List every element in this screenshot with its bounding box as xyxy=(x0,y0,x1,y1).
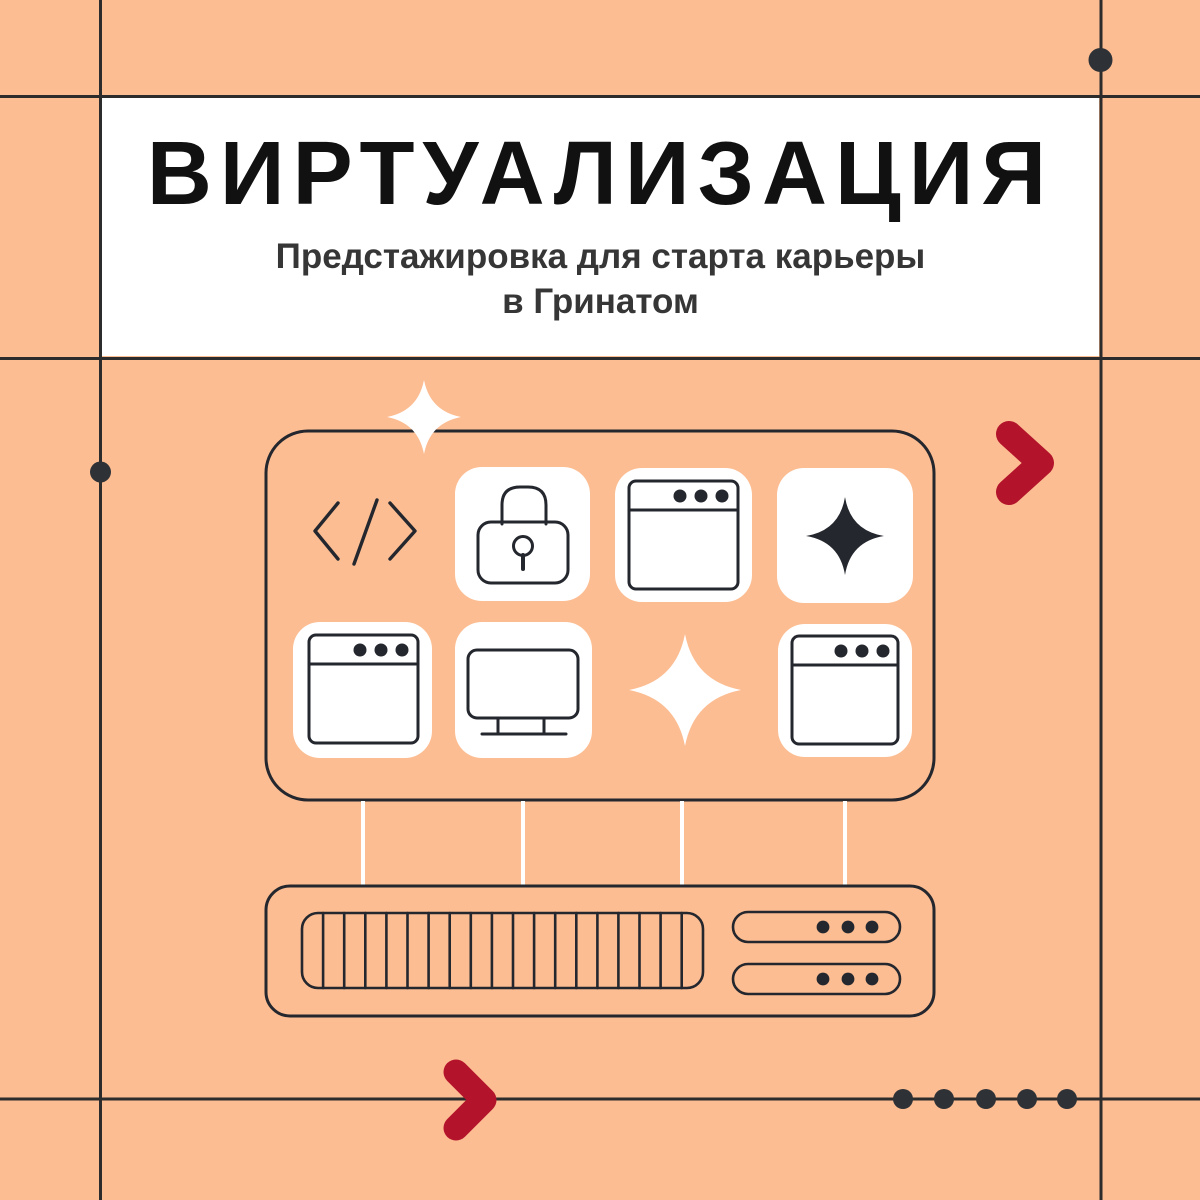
sparkle-icon xyxy=(387,380,461,454)
poster-subtitle-line1: Предстажировка для старта карьеры xyxy=(276,235,926,280)
rack-unit-1 xyxy=(733,912,900,942)
sparkle-icon xyxy=(629,634,741,746)
row-dot-icon xyxy=(1057,1089,1077,1109)
server-rack xyxy=(266,886,934,1016)
lock-tile xyxy=(455,467,590,601)
row-dot-icon xyxy=(1017,1089,1037,1109)
monitor-tile xyxy=(455,622,592,758)
icon-tile xyxy=(778,624,912,757)
icon-tile xyxy=(455,622,592,758)
grid-dot-top-right xyxy=(1089,48,1113,72)
grid-dot-left xyxy=(90,462,111,483)
title-banner: ВИРТУАЛИЗАЦИЯ Предстажировка для старта … xyxy=(102,98,1099,356)
row-dot-icon xyxy=(976,1089,996,1109)
icon-tile xyxy=(615,468,752,602)
code-icon xyxy=(315,500,415,564)
poster-subtitle-line2: в Гринатом xyxy=(276,280,926,325)
browser-tile-3 xyxy=(778,624,912,757)
poster-title: ВИРТУАЛИЗАЦИЯ xyxy=(147,129,1054,219)
sparkle-tile xyxy=(777,468,913,603)
row-dot-icon xyxy=(893,1089,913,1109)
poster-canvas: ВИРТУАЛИЗАЦИЯ Предстажировка для старта … xyxy=(0,0,1200,1200)
row-dot-icon xyxy=(934,1089,954,1109)
icon-tile xyxy=(293,622,432,758)
connector-lines xyxy=(363,801,845,885)
chevron-right-icon xyxy=(1009,434,1041,492)
rack-vent-panel xyxy=(302,913,703,988)
browser-tile-1 xyxy=(615,468,752,602)
browser-tile-2 xyxy=(293,622,432,758)
poster-subtitle: Предстажировка для старта карьеры в Грин… xyxy=(276,235,926,325)
rack-unit-2 xyxy=(733,964,900,994)
